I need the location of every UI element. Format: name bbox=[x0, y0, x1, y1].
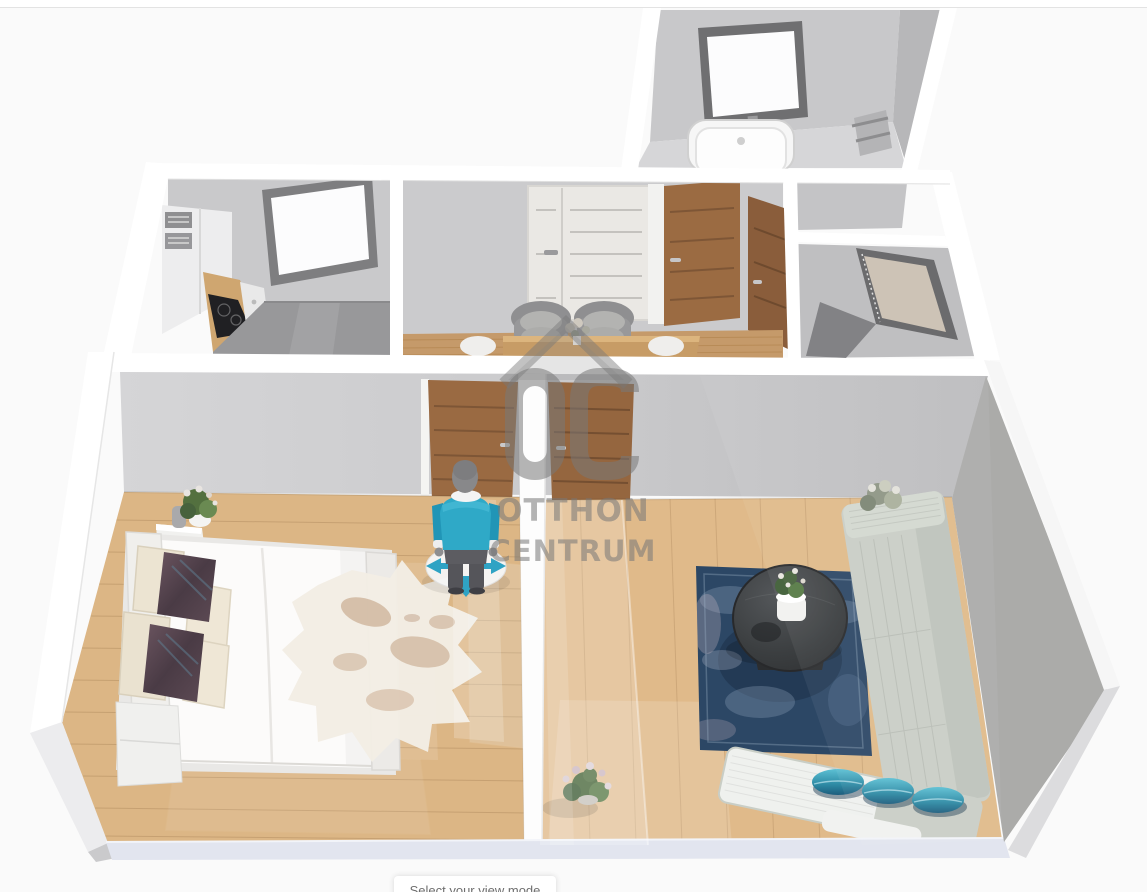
floorplan-viewer: OTTHON CENTRUM Select your view mode bbox=[0, 0, 1147, 892]
bathroom-window bbox=[698, 21, 808, 129]
watermark-line2: CENTRUM bbox=[490, 534, 657, 568]
bathtub bbox=[688, 120, 794, 174]
wall-top-kitchen-hall bbox=[390, 170, 403, 360]
view-mode-panel[interactable]: Select your view mode bbox=[394, 876, 556, 892]
entrance-double-door bbox=[528, 186, 650, 320]
nightstand-foot bbox=[116, 702, 182, 786]
near-chair bbox=[648, 336, 684, 356]
bathroom bbox=[621, 8, 957, 174]
near-chair bbox=[460, 336, 496, 356]
view-mode-label: Select your view mode bbox=[410, 883, 541, 892]
hallway bbox=[398, 172, 790, 360]
hall-door-brown-2 bbox=[748, 196, 790, 350]
hall-door-brown-1 bbox=[648, 180, 740, 326]
watermark-line1: OTTHON bbox=[496, 493, 650, 529]
top-chrome-bar bbox=[0, 0, 1147, 8]
kitchen-window bbox=[262, 176, 378, 286]
table-shadow-blob bbox=[751, 622, 781, 642]
